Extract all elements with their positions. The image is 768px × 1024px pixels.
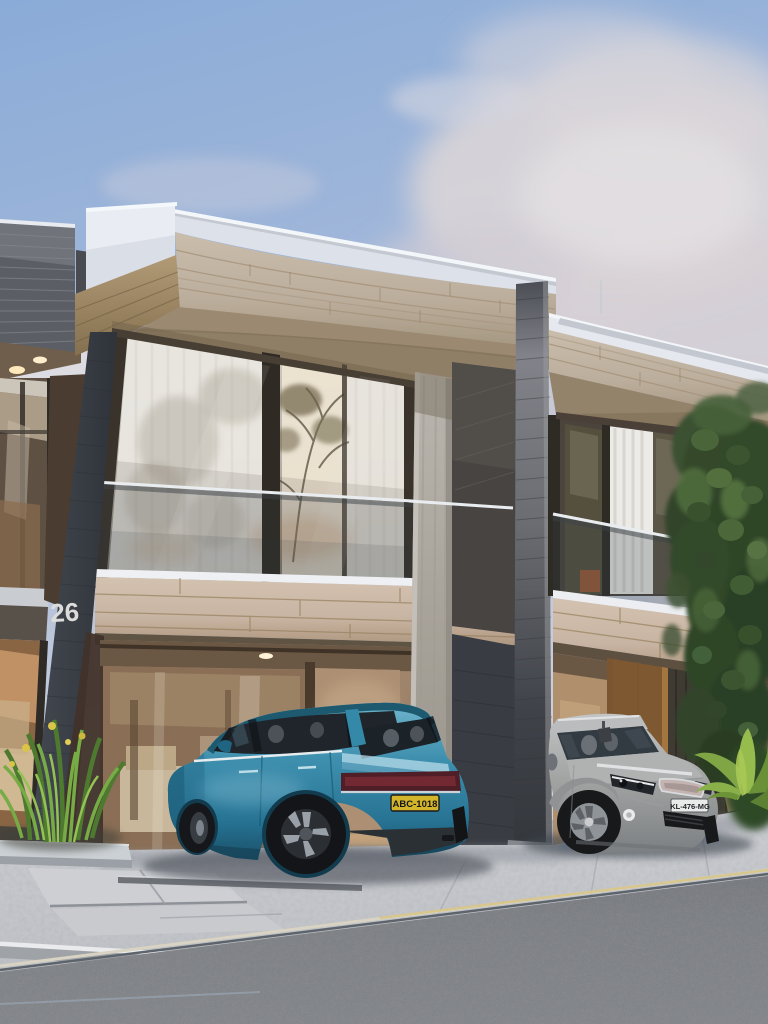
svg-text:KL-476-MG: KL-476-MG — [670, 802, 710, 811]
svg-text:ABC-1018: ABC-1018 — [393, 799, 438, 810]
svg-text:26: 26 — [49, 597, 79, 628]
